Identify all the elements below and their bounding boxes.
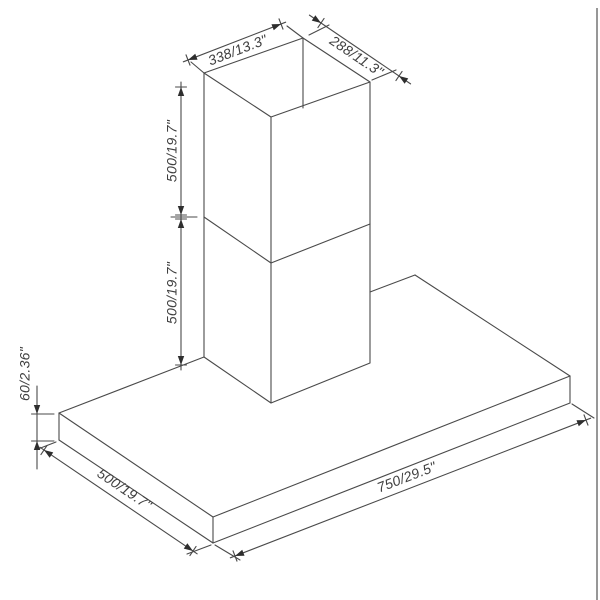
dim-label-hood-body-height: 60/2.36" [17, 346, 33, 401]
dim-arrow-duct-top-depth-0 [312, 15, 321, 23]
ext-338-left [191, 62, 204, 73]
dim-arrow-hood-body-height-0 [34, 405, 40, 414]
edge-hood-top-right-edge [415, 275, 570, 376]
edge-hood-top-back-edge-right [370, 275, 415, 292]
dim-arrow-upper-chimney-height-0 [178, 87, 184, 96]
dim-arrow-duct-top-width-1 [271, 24, 281, 30]
dimension-drawing-svg: 338/13.3"288/11.3"500/19.7"500/19.7"60/2… [0, 0, 600, 600]
dim-line-hood-body-depth [40, 447, 197, 554]
dim-arrow-duct-top-depth-1 [399, 76, 408, 84]
dim-arrow-hood-body-depth-1 [184, 543, 193, 551]
range-hood-dimension-diagram: 338/13.3"288/11.3"500/19.7"500/19.7"60/2… [0, 0, 600, 600]
dim-label-lower-chimney-height: 500/19.7" [164, 261, 180, 324]
ext-338-right [287, 26, 303, 38]
dim-label-duct-top-width: 338/13.3" [206, 31, 270, 68]
dim-arrow-lower-chimney-height-1 [178, 356, 184, 365]
dim-arrow-hood-body-depth-0 [44, 450, 53, 458]
ext-750-right [572, 404, 594, 418]
edge-chimney-bottom-seam [204, 357, 370, 403]
dim-arrow-hood-body-height-1 [34, 441, 40, 450]
dim-arrow-lower-chimney-height-0 [178, 219, 184, 228]
dim-label-upper-chimney-height: 500/19.7" [164, 119, 180, 182]
edge-chimney-mid-seam [204, 217, 370, 263]
dim-arrow-duct-top-width-0 [188, 54, 198, 60]
dim-arrow-hood-body-width-1 [576, 420, 586, 426]
dim-arrow-hood-body-width-0 [235, 550, 245, 556]
